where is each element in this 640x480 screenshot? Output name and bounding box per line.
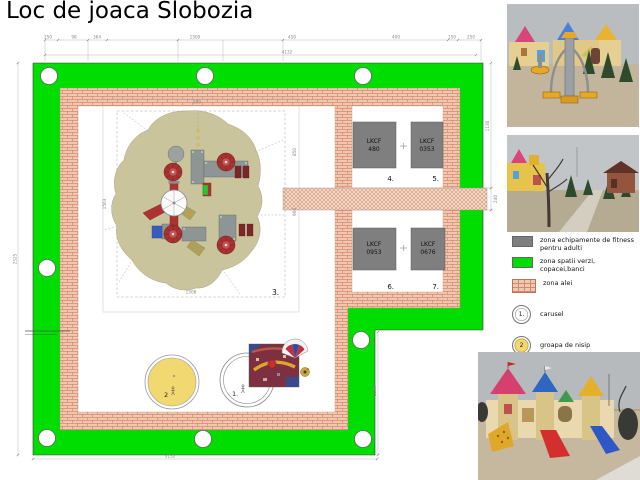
svg-text:4.: 4. [387,175,394,183]
roundabout-icon [161,190,187,216]
legend: zona echipamente de fitness pentru adult… [512,236,638,355]
svg-text:5.: 5. [432,175,439,183]
fitness-panel: LKCF 0353 [411,122,443,168]
svg-text:450: 450 [288,35,296,40]
tower-icon [164,163,182,181]
svg-text:850: 850 [292,148,297,156]
svg-text:250: 250 [44,35,52,40]
alei-zone-swatch [512,279,536,293]
fitness-zone-swatch [512,236,533,247]
photo-castle-playground [478,352,640,480]
legend-item-green: zona spatii verzi, copacei,banci [512,257,638,273]
svg-text:1508: 1508 [186,290,197,295]
svg-text:0676: 0676 [420,249,435,256]
legend-label: zona echipamente de fitness pentru adult… [540,236,638,252]
legend-label: zona alei [543,279,572,288]
planter-vase [591,48,600,64]
spring-toy-icon [301,368,310,377]
blue-slide [152,226,162,238]
svg-text:240: 240 [493,195,498,203]
tower-icon [164,225,182,243]
svg-text:7.: 7. [432,283,439,291]
photo-park-alley [507,135,639,232]
svg-text:1503: 1503 [102,198,107,209]
green-zone-swatch [512,257,533,268]
svg-text:LKCF: LKCF [421,241,436,248]
carousel-number: 1. [232,390,238,398]
svg-text:LKCF: LKCF [420,138,435,145]
sandpit-number: 2 [164,391,168,399]
legend-item-alei: zona alei [512,279,638,293]
fitness-panel: LKCF 0676 [411,228,445,270]
svg-text:250: 250 [467,35,475,40]
sand-pit: 2 [145,355,199,409]
tower-icon [217,236,235,254]
svg-text:150: 150 [448,35,456,40]
playground-number: 3. [272,288,279,297]
legend-item-fitness: zona echipamente de fitness pentru adult… [512,236,638,252]
page: 3. LKCF 480 LKCF 0353 LKCF 0953 LKCF [0,0,640,480]
svg-text:6.: 6. [387,283,394,291]
svg-text:2525: 2525 [13,253,18,264]
svg-text:364: 364 [93,35,101,40]
carousel-marker-icon: 1. [512,305,531,324]
svg-text:480: 480 [368,146,380,153]
legend-label: carusel [540,310,564,318]
svg-text:3132: 3132 [165,454,176,459]
green-panel [203,185,208,195]
svg-text:LKCF: LKCF [367,241,382,248]
legend-label: groapa de nisip [540,341,590,349]
svg-text:0953: 0953 [366,249,381,256]
legend-marker-carousel: 1. carusel [512,305,638,324]
tower-icon [217,153,235,171]
fitness-panel: LKCF 480 [353,122,396,168]
svg-text:1500: 1500 [190,35,201,40]
svg-text:4132: 4132 [282,50,293,55]
access-path [283,188,487,210]
svg-text:500: 500 [193,100,201,105]
svg-text:900: 900 [292,208,297,216]
svg-text:0353: 0353 [419,146,434,153]
svg-text:98: 98 [71,35,77,40]
legend-label: zona spatii verzi, copacei,banci [540,257,638,273]
fitness-panel: LKCF 0953 [353,228,396,270]
svg-text:1100: 1100 [372,385,377,396]
svg-text:1130: 1130 [485,120,490,131]
svg-text:LKCF: LKCF [367,138,382,145]
photo-fitness-equipment [507,4,639,127]
page-title: Loc de joaca Slobozia [6,0,253,24]
svg-text:400: 400 [392,35,400,40]
